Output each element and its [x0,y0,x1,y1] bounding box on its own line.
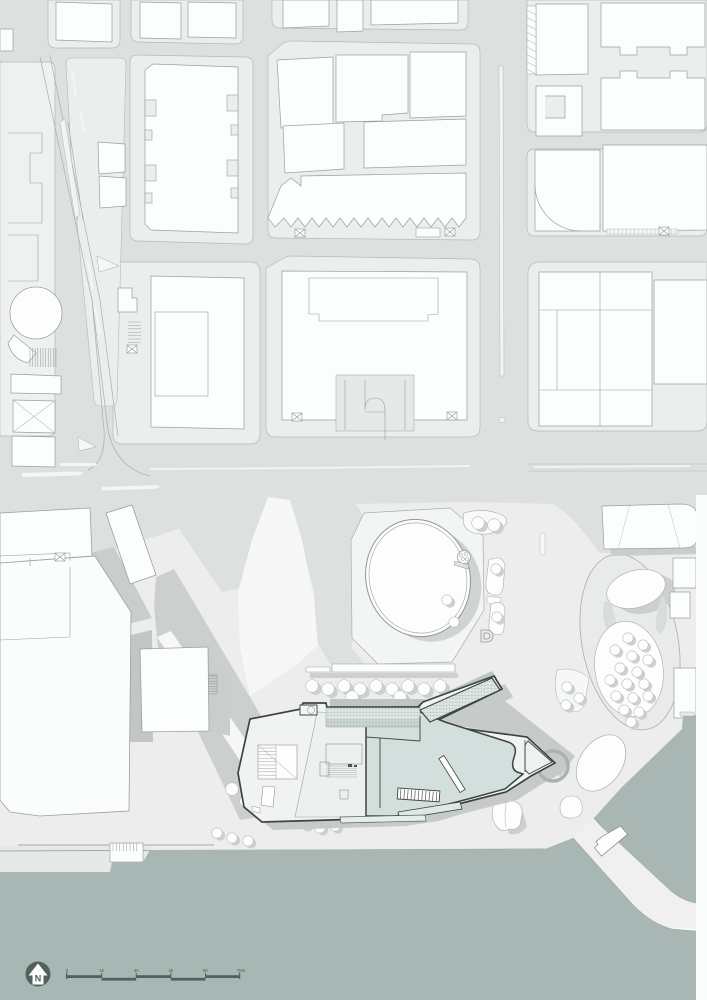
svg-text:60: 60 [203,968,208,973]
svg-text:75m: 75m [237,968,246,973]
svg-text:15: 15 [99,968,104,973]
svg-text:45: 45 [168,968,173,973]
svg-text:30: 30 [134,968,139,973]
svg-text:N: N [35,974,42,984]
